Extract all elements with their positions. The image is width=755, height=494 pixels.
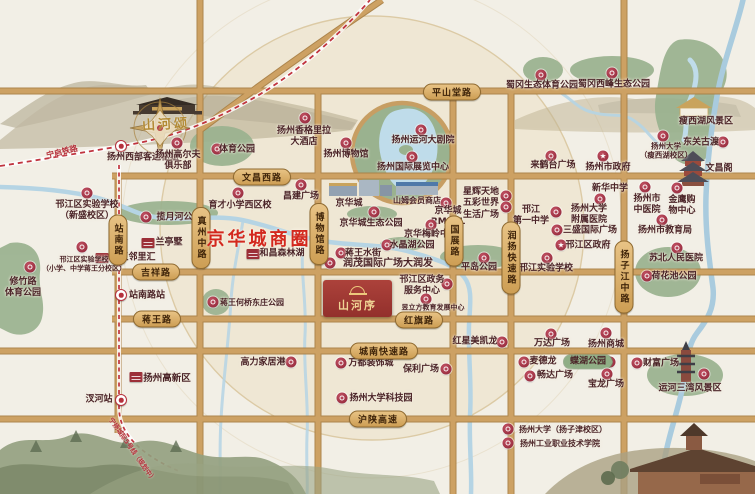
poi-label: 文昌阁 <box>705 163 732 174</box>
poi-badge-icon[interactable] <box>552 225 563 236</box>
poi-label: 来鹤台广场 <box>530 160 575 171</box>
business-district-label: 京华城商圈 <box>207 225 312 251</box>
poi-label: 新华中学 <box>592 183 628 194</box>
poi-badge-icon[interactable] <box>336 358 347 369</box>
poi-badge-icon[interactable] <box>607 68 618 79</box>
road-tag: 红旗路 <box>395 312 443 329</box>
poi-label: 苏北人民医院 <box>649 253 703 264</box>
poi-label: 红星美凯龙 <box>452 336 497 347</box>
poi-badge-icon[interactable] <box>632 358 643 369</box>
road-tag: 站南路 <box>109 215 128 266</box>
poi-badge-icon[interactable] <box>657 215 668 226</box>
poi-label: 扬州市教育局 <box>638 225 692 236</box>
road-tag: 吉祥路 <box>132 264 180 281</box>
poi-label: 高力家居港 <box>240 357 285 368</box>
poi-label: 蝶湖公园 <box>564 355 612 368</box>
road-tag: 城南快速路 <box>350 343 418 360</box>
poi-badge-icon[interactable] <box>658 131 669 142</box>
poi-label: 保利广场 <box>403 364 439 375</box>
poi-label: 扬州高尔夫 俱乐部 <box>155 150 200 173</box>
poi-label: 兰亭墅 <box>155 237 182 248</box>
poi-badge-icon[interactable] <box>542 253 553 264</box>
poi-label: 蜀冈生态体育公园 <box>506 80 578 91</box>
poi-label: 扬州市政府 <box>585 162 630 173</box>
poi-badge-icon[interactable] <box>296 180 307 191</box>
poi-label: 畅达广场 <box>537 370 573 381</box>
poi-badge-icon[interactable] <box>501 191 512 202</box>
poi-label: 山姆会员商店 <box>393 196 441 206</box>
metro-station-icon[interactable] <box>115 140 127 152</box>
road-tag: 沪陕高速 <box>349 411 407 428</box>
metro-station-icon[interactable] <box>115 394 127 406</box>
poi-badge-icon[interactable] <box>172 138 183 149</box>
poi-label: 万达广场 <box>534 338 570 349</box>
poi-label: 财富广场 <box>643 358 679 369</box>
poi-label: 京华城 <box>335 198 362 209</box>
poi-label: 修竹路 体育公园 <box>5 277 41 300</box>
project-name: 山河序 <box>338 297 377 313</box>
poi-label: 扬州工业职业技术学院 <box>520 439 600 449</box>
poi-badge-icon[interactable] <box>341 138 352 149</box>
road-tag: 扬子江中路 <box>615 241 634 314</box>
project-logo-icon <box>349 285 367 295</box>
poi-label: 瘦西湖风景区 <box>679 116 733 127</box>
poi-badge-icon[interactable] <box>141 212 152 223</box>
road-tag: 平山堂路 <box>423 84 481 101</box>
poi-badge-icon[interactable] <box>497 337 508 348</box>
poi-label: 蜀冈西峰生态公园 <box>578 79 650 90</box>
poi-badge-icon[interactable] <box>672 243 683 254</box>
poi-label: 扬州大学科技园 <box>349 393 412 404</box>
metro-station-icon[interactable] <box>115 289 127 301</box>
poi-badge-icon[interactable] <box>602 369 613 380</box>
poi-label: 扬州香格里拉 大酒店 <box>277 126 331 149</box>
poi-badge-icon[interactable] <box>640 182 651 193</box>
poi-badge-icon[interactable] <box>601 328 612 339</box>
poi-label: 京华城生态公园 <box>339 218 402 229</box>
building-icon[interactable] <box>142 238 155 248</box>
poi-badge-icon[interactable] <box>551 207 562 218</box>
poi-label: 麦德龙 <box>529 356 556 367</box>
poi-label: 蒋王何桥东庄公园 <box>220 298 284 308</box>
poi-label: 万都装饰城 <box>348 358 393 369</box>
project-shanhesong-label: 山河颂 <box>142 112 191 133</box>
poi-label: 东关古渡 <box>683 137 719 148</box>
poi-label: 扬州商城 <box>588 339 624 350</box>
poi-label: 星辉天地 五彩世界 生活广场 <box>463 187 499 221</box>
poi-label: 邗江实验学校 <box>519 263 573 274</box>
poi-badge-icon[interactable] <box>718 137 729 148</box>
road-tag: 国展路 <box>445 216 464 267</box>
poi-label: 三盛国际广场 <box>563 225 617 236</box>
poi-label: 扬州高新区 <box>143 373 191 385</box>
poi-label: 站南路站 <box>129 290 165 301</box>
poi-badge-icon[interactable] <box>77 242 88 253</box>
poi-badge-icon[interactable] <box>501 202 512 213</box>
poi-badge-icon[interactable] <box>233 188 244 199</box>
poi-label: 金鹰购 物中心 <box>668 195 695 218</box>
poi-label: 平岛公园 <box>461 262 497 273</box>
poi-badge-icon[interactable] <box>300 113 311 124</box>
poi-label: 邗江区政府 <box>565 240 610 251</box>
poi-label: 扬州博物馆 <box>323 149 368 160</box>
poi-label: 荷花池公园 <box>651 271 696 282</box>
poi-badge-icon[interactable] <box>525 371 536 382</box>
poi-badge-icon[interactable] <box>672 183 683 194</box>
poi-badge-icon[interactable] <box>25 262 36 273</box>
road-tag: 博物馆路 <box>310 203 329 265</box>
poi-label: 育才小学西区校 <box>208 200 271 211</box>
poi-label: 扬州国际展览中心 <box>377 162 449 173</box>
poi-label: 扬州市 中医院 <box>633 194 660 217</box>
poi-badge-icon[interactable] <box>699 369 710 380</box>
poi-badge-icon[interactable] <box>337 393 348 404</box>
poi-label: 扬州运河大剧院 <box>391 135 454 146</box>
poi-badge-icon[interactable] <box>536 70 547 81</box>
road-tag: 蒋王路 <box>133 311 181 328</box>
project-marker-shanhexu[interactable]: 山河序 <box>323 280 392 317</box>
poi-badge-icon[interactable] <box>407 152 418 163</box>
poi-label: 宝龙广场 <box>588 379 624 390</box>
poi-badge-icon[interactable] <box>519 357 530 368</box>
poi-badge-icon[interactable] <box>82 188 93 199</box>
poi-badge-icon[interactable] <box>286 357 297 368</box>
poi-badge-icon[interactable] <box>369 207 380 218</box>
poi-badge-icon[interactable] <box>416 125 427 136</box>
poi-badge-icon[interactable] <box>441 364 452 375</box>
poi-label: 扬州大学（扬子津校区） <box>519 425 607 435</box>
poi-badge-icon[interactable] <box>208 297 219 308</box>
poi-label: 水晶湖公园 <box>389 240 434 251</box>
poi-label: 扬州大学 附属医院 <box>571 204 607 227</box>
road-tag: 润扬快速路 <box>502 222 521 295</box>
building-icon[interactable] <box>130 372 143 382</box>
poi-badge-icon[interactable] <box>503 424 514 435</box>
poi-label: 运河三湾风景区 <box>658 383 721 394</box>
poi-label: 润茂国际广场大润发 <box>343 258 433 271</box>
road-tag: 文昌西路 <box>233 169 291 186</box>
government-star-icon[interactable]: ★ <box>598 151 609 162</box>
poi-label: 汊河站 <box>85 394 112 405</box>
poi-label: 体育公园 <box>219 144 255 155</box>
sams-club-illustration <box>396 182 438 195</box>
poi-label: 昌建广场 <box>283 191 319 202</box>
map-canvas: 扬州西部客运枢纽扬州高尔夫 俱乐部体育公园邗江区实验学校 （新盛校区）揽月河公园… <box>0 0 755 494</box>
poi-badge-icon[interactable] <box>503 438 514 449</box>
